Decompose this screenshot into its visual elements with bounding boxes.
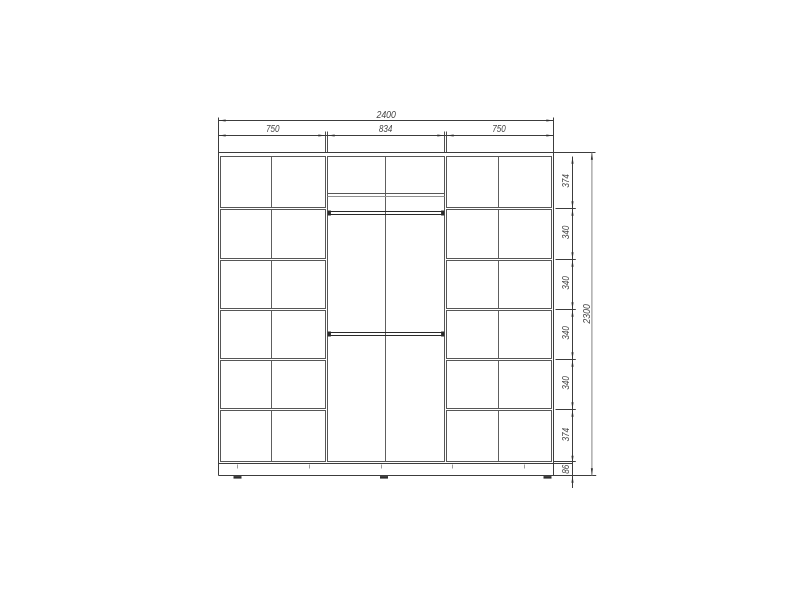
svg-text:2300: 2300 (582, 304, 593, 325)
svg-text:340: 340 (561, 376, 572, 390)
svg-text:750: 750 (492, 124, 506, 135)
svg-text:750: 750 (266, 124, 280, 135)
svg-text:374: 374 (561, 428, 572, 442)
svg-text:340: 340 (561, 326, 572, 340)
svg-text:2400: 2400 (376, 110, 397, 121)
svg-text:374: 374 (561, 174, 572, 188)
svg-text:340: 340 (561, 276, 572, 290)
svg-text:340: 340 (561, 225, 572, 239)
svg-text:834: 834 (379, 124, 393, 135)
svg-text:86: 86 (561, 464, 572, 473)
